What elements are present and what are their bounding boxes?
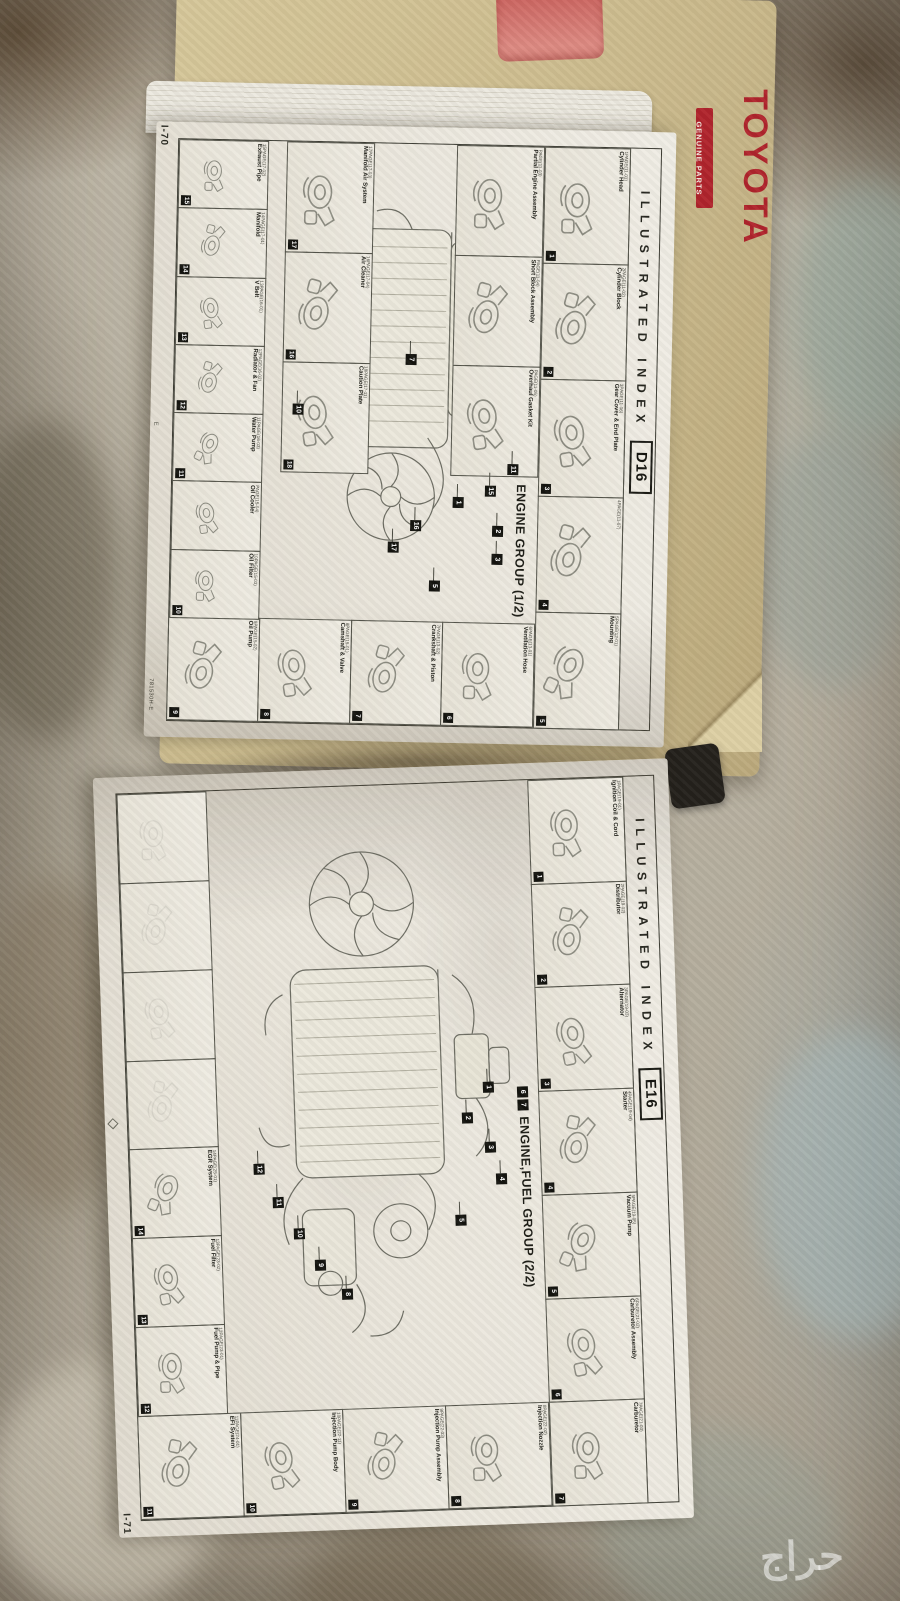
part-illustration [560,1419,619,1487]
part-illustration [544,1205,621,1287]
callout-number: 11 [273,1197,284,1208]
part-number-badge: 14 [179,264,189,274]
part-cell: PAGE(11-03) Partial Engine Assembly [455,145,545,258]
part-number-badge: 7 [352,711,362,721]
parts-row-assemblies: PAGE(11-03) Partial Engine Assembly PAGE… [450,145,545,477]
part-number-badge: 8 [261,709,271,719]
part-illustration [533,627,607,715]
page-sheet: ILLUSTRATED INDEX D16 ENGINE GROUP (1/2) [144,122,677,748]
part-label: Exhaust Pipe [254,142,262,209]
part-illustration [353,634,423,711]
part-number-badge: 4 [544,1182,554,1192]
parts-column-right: 6PAGE(13-01) Ventilation Hose 6 7PAGE(13… [167,616,535,728]
part-cell: 14PAGE(17-01) Manifold 14 [176,207,267,278]
part-cell: 11PAGE(24-01) EFI System 11 [137,1413,244,1521]
part-number-badge: 6 [551,1390,561,1400]
parts-row-intake: 17PAGE(17-03) Manifold Air System 17 16P… [280,141,375,473]
callout-number: 11 [507,464,518,475]
part-illustration [182,215,244,270]
part-number-badge: 10 [172,605,182,615]
part-cell: 2PAGE(11-02) Cylinder Block 2 [540,263,628,382]
part-illustration [170,630,240,707]
part-number-badge: 1 [546,251,556,261]
part-illustration [285,267,353,348]
part-label: Water Pump [248,415,256,482]
part-page-code: 4PAGE(11-07) [614,498,622,613]
part-number-badge: 9 [349,1499,359,1509]
part-illustration [264,634,328,707]
margin-pentagon-mark [107,1118,118,1129]
part-number-badge: 5 [548,1286,558,1296]
part-illustration [540,1000,609,1076]
part-illustration [247,1425,320,1502]
part-illustration [179,562,233,606]
callout-number: 10 [294,1228,305,1239]
photo-scene: GENUINE PARTS TOYOTA ILLUSTRATED INDEX D… [0,0,900,1601]
part-illustration [542,280,610,364]
part-cell: 6PAGE(21-02) Carburetor Assembly 6 [545,1295,645,1403]
part-number-badge: 16 [286,349,296,359]
part-illustration [182,286,241,337]
part-number-badge: 2 [537,975,547,985]
part-label: Radiator & Fan [250,346,258,413]
part-illustration [176,417,242,478]
callout-number: 12 [253,1164,264,1175]
part-cell: 5PAGE(12-01) Mounting 5 [533,611,621,730]
part-number-badge: 8 [451,1496,461,1506]
part-cell: 10PAGE(15-03) Oil Filter 10 [169,549,260,620]
part-number-badge: 18 [283,459,293,469]
publication-code: 781530H-E [147,678,154,710]
part-illustration [188,152,242,196]
red-bookmark-tab [496,0,604,62]
part-illustration [455,271,523,352]
part-illustration [132,1072,195,1138]
part-cell [126,1058,219,1151]
part-cell: PAGE(11-04) Short Block Assembly [453,255,543,368]
callout-number: 17 [388,542,399,553]
part-cell: 8PAGE(15-01) Camshaft & Valve 8 [258,618,353,724]
part-illustration [543,398,604,479]
part-number-badge: 4 [538,600,548,610]
illustrated-index-title: ILLUSTRATED INDEX [633,191,652,429]
part-number-badge: 1 [533,871,543,881]
part-cell: 10PAGE(22-11) Injection Pump Body 10 [240,1409,347,1517]
part-illustration [537,512,605,596]
part-cell: 7PAGE(21-03) Carburetor 7 [549,1399,649,1507]
part-number-badge: 14 [135,1226,145,1236]
part-illustration [349,1421,422,1498]
part-illustration [544,1104,613,1180]
part-cell [120,880,213,973]
page-frame: ILLUSTRATED INDEX D16 ENGINE GROUP (1/2) [166,138,662,731]
part-illustration [132,1157,202,1229]
callout-number: 1 [453,497,464,508]
part-illustration [126,894,189,960]
part-number-badge: 15 [181,195,191,205]
callout-number: 8 [342,1289,353,1300]
part-illustration [537,897,606,973]
parts-row-bottom: 14PAGE(25-01) EGR System 14 13PAGE(23-02… [116,791,228,1416]
page-frame: ILLUSTRATED INDEX E16 67 ENGINE,FUEL GRO… [115,775,679,1521]
part-illustration [179,352,241,407]
carpet-pattern [0,420,120,740]
parts-row-bottom: 15PAGE(17-02) Exhaust Pipe 15 14PAGE(17-… [169,139,269,619]
part-illustration [551,1311,620,1387]
part-illustration [465,166,518,237]
part-number-badge: 13 [178,332,188,342]
carpet-pattern [758,1030,900,1340]
part-number-badge: 3 [541,1079,551,1089]
page-number: I-71 [121,1513,133,1535]
part-cell [116,791,209,884]
callout-number: 9 [315,1259,326,1270]
part-cell: 11PAGE(16-03) Water Pump 11 [172,412,263,483]
catalog-page-bottom: ILLUSTRATED INDEX E16 67 ENGINE,FUEL GRO… [93,758,695,1542]
part-number-badge: 9 [169,707,179,717]
part-cell: 9PAGE(22-03) Injection Pump Assembly 9 [343,1405,450,1513]
genuine-parts-label: GENUINE PARTS [695,121,704,195]
part-illustration [456,383,518,460]
part-cell: 3PAGE(11-06) Gear Cover & End Plate 3 [538,379,626,498]
callout-number: 3 [485,1141,496,1152]
part-cell: 17PAGE(17-03) Manifold Air System 17 [285,141,375,254]
part-cell: 15PAGE(17-02) Exhaust Pipe 15 [178,139,269,210]
callout-number: 5 [455,1215,466,1226]
part-cell: 18PAGE(17-11) Caution Plate 18 [280,361,370,474]
part-cell: 4PAGE(11-07) 4 [535,495,623,614]
illustrated-index-title: ILLUSTRATED INDEX [633,818,655,1056]
part-cell: 12PAGE(23-01) Fuel Pump & Pipe 12 [135,1324,228,1417]
part-cell: 2PAGE(19-02) Distributor 2 [531,880,631,988]
part-cell: 12PAGE(16-02) Radiator & Fan 12 [173,344,264,415]
part-cell: 9PAGE(15-02) Oil Pump 9 [166,616,261,722]
parts-row-top: 1PAGE(11-01) Cylinder Head 1 2PAGE(11-02… [533,147,631,730]
part-number-badge: 7 [555,1493,565,1503]
part-illustration [144,1428,217,1505]
part-cell: PAGE(15-04) Oil Cooler [171,480,262,551]
callout-number: 16 [410,520,421,531]
callout-number: 2 [492,526,503,537]
part-number-badge: 13 [138,1315,148,1325]
genuine-parts-badge: GENUINE PARTS [696,108,713,208]
part-illustration [538,797,597,865]
carpet-pattern [796,180,900,440]
part-number-badge: 12 [141,1404,151,1414]
book-spine [664,743,726,810]
part-cell: 5PAGE(19-05) Vacuum Pump 5 [542,1191,642,1299]
part-cell: 7PAGE(13-02) Crankshaft & Piston 7 [349,620,444,726]
group-title: ENGINE GROUP (1/2) [511,484,528,618]
part-cell [123,969,216,1062]
part-number-badge: 6 [444,713,454,723]
part-number-badge: 12 [177,400,187,410]
carpet-pattern [756,430,900,690]
part-illustration [457,1422,520,1489]
part-illustration [145,1342,200,1400]
part-number-badge: 11 [143,1507,153,1517]
part-cell: 6PAGE(13-01) Ventilation Hose 6 [440,622,535,728]
part-illustration [295,162,348,233]
part-cell: 3PAGE(19-03) Alternator 3 [534,984,634,1092]
part-illustration [286,379,348,456]
callout-number: 1 [483,1081,494,1092]
part-number-badge: 2 [543,367,553,377]
parts-column-right: 8PAGE(22-02) Injection Nozzle 8 9PAGE(22… [138,1402,552,1520]
callout-number: 2 [462,1112,473,1123]
part-illustration [553,169,605,244]
toyota-wordmark: TOYOTA [735,89,774,246]
cover-corner-fold [688,668,762,752]
part-illustration [178,491,237,542]
callout-number: 7 [406,354,417,365]
part-illustration [138,1249,201,1315]
part-number-badge: 5 [536,716,546,726]
watermark-text: حراج [759,1533,844,1582]
part-number-badge: 17 [288,239,298,249]
title-callout: 7 [517,1099,528,1110]
section-code-tab: D16 [629,441,653,494]
engine-illustration [216,807,536,1397]
part-cell: PAGE(11-05) Overhaul Gasket Kit [450,365,540,478]
toyota-logo: TOYOTA [716,92,768,232]
title-callout: 6 [517,1086,528,1097]
part-number-badge: 10 [246,1503,256,1513]
part-illustration [451,641,507,707]
part-label: Oil Cooler [247,483,255,550]
margin-mark: E [152,422,158,426]
part-illustration [127,809,182,867]
part-number-badge: 11 [175,468,185,478]
callout-number: 3 [491,554,502,565]
callout-number: 5 [429,580,440,591]
part-cell: 1PAGE(11-01) Cylinder Head 1 [543,147,631,266]
callout-number: 15 [485,486,496,497]
part-illustration [129,983,192,1049]
part-number-badge: 3 [541,483,551,493]
part-cell: 13PAGE(23-02) Fuel Filter 13 [132,1235,225,1328]
part-cell: 4PAGE(19-04) Starter 4 [538,1088,638,1196]
part-cell: 14PAGE(25-01) EGR System 14 [129,1147,222,1240]
callout-number: 4 [496,1173,507,1184]
section-code-tab: E16 [638,1068,663,1120]
catalog-page-top: ILLUSTRATED INDEX D16 ENGINE GROUP (1/2) [144,122,677,755]
callout-number: 10 [292,404,303,415]
part-cell: 16PAGE(17-04) Air Cleaner 16 [283,251,373,364]
page-number: I-70 [158,125,169,146]
part-cell: 13PAGE(16-01) V Belt 13 [175,276,266,347]
part-cell: 1PAGE(19-01) Ignition Coil & Cord 1 [527,777,627,885]
part-cell: 8PAGE(22-02) Injection Nozzle 8 [445,1402,552,1510]
page-sheet: ILLUSTRATED INDEX E16 67 ENGINE,FUEL GRO… [93,758,694,1538]
